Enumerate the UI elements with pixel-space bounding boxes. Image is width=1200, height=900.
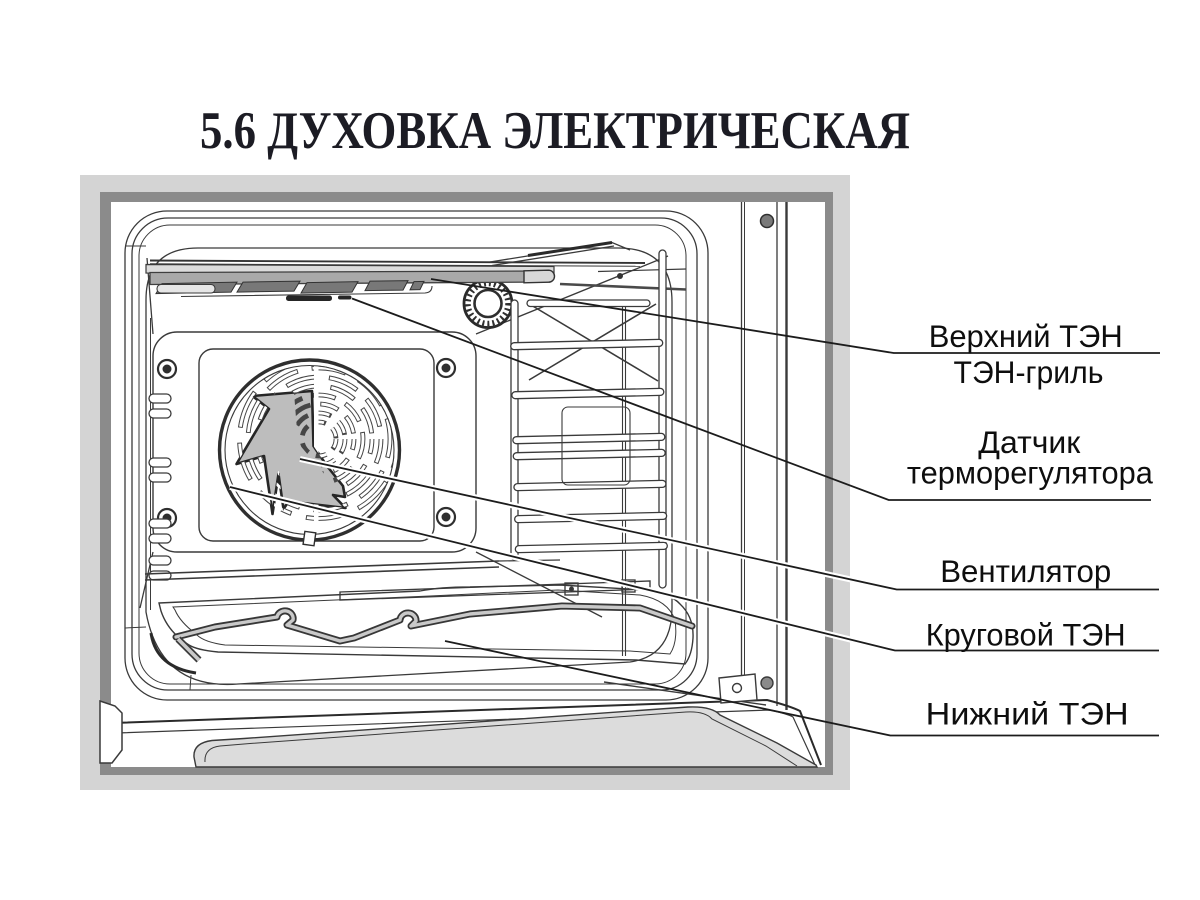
- svg-text:ТЭН-гриль: ТЭН-гриль: [954, 354, 1104, 390]
- svg-text:Вентилятор: Вентилятор: [940, 553, 1111, 589]
- svg-text:Нижний ТЭН: Нижний ТЭН: [926, 696, 1129, 732]
- svg-text:5.6 ДУХОВКА ЭЛЕКТРИЧЕСКАЯ: 5.6 ДУХОВКА ЭЛЕКТРИЧЕСКАЯ: [200, 102, 910, 160]
- svg-text:Верхний ТЭН: Верхний ТЭН: [929, 318, 1123, 354]
- svg-text:терморегулятора: терморегулятора: [907, 455, 1153, 491]
- svg-text:Круговой ТЭН: Круговой ТЭН: [926, 617, 1126, 653]
